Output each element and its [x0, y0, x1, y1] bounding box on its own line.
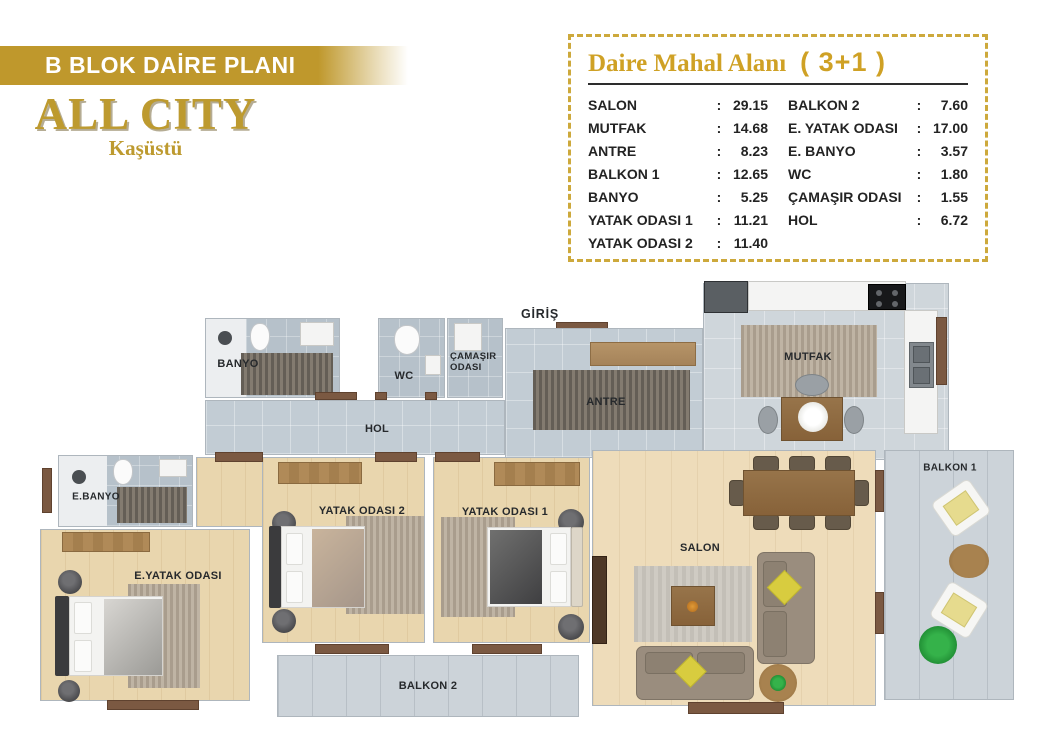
bed-blanket	[104, 599, 162, 675]
sofa-cushion	[763, 611, 787, 657]
table-row: WC:1.80	[788, 163, 968, 186]
bath-rug	[117, 487, 187, 523]
separator: :	[914, 140, 924, 163]
room-name: BALKON 2	[788, 94, 914, 117]
room-label-camasir-odasi: ÇAMAŞIR ODASI	[450, 351, 508, 373]
separator: :	[714, 209, 724, 232]
bed-pillow	[550, 571, 567, 603]
wardrobe	[494, 462, 580, 486]
room-name: MUTFAK	[588, 117, 714, 140]
washing-machine	[454, 323, 482, 351]
room-area: 14.68	[724, 117, 768, 140]
room-area: 1.80	[924, 163, 968, 186]
bathroom-sink	[159, 459, 187, 477]
bed	[281, 526, 365, 608]
bed	[69, 596, 163, 676]
banner-text: B BLOK DAİRE PLANI	[45, 52, 296, 79]
room-name: HOL	[788, 209, 914, 232]
room-name: E. BANYO	[788, 140, 914, 163]
stove	[868, 284, 906, 310]
side-table	[558, 614, 584, 640]
kitchen-sink	[909, 342, 934, 388]
header-banner: B BLOK DAİRE PLANI	[0, 46, 408, 85]
separator: :	[914, 94, 924, 117]
plan-type-badge: ( 3+1 )	[800, 47, 886, 78]
room-label-banyo: BANYO	[217, 358, 258, 370]
wardrobe	[62, 532, 150, 552]
room-label-wc: WC	[395, 370, 414, 382]
separator: :	[714, 186, 724, 209]
dining-chair	[789, 514, 815, 530]
toilet	[113, 459, 133, 485]
door-jamb	[375, 392, 387, 400]
table-row: YATAK ODASI 2:11.40	[588, 232, 768, 255]
door-jamb	[425, 392, 437, 400]
room-name: BALKON 1	[588, 163, 714, 186]
area-table-title: Daire Mahal Alanı	[588, 50, 786, 78]
corridor	[196, 457, 264, 527]
bed-pillow	[286, 533, 303, 565]
bed-headboard	[55, 596, 69, 676]
room-area: 11.40	[724, 232, 768, 255]
table-row: BANYO:5.25	[588, 186, 768, 209]
room-name: WC	[788, 163, 914, 186]
bed-headboard	[571, 527, 583, 607]
chair-cushion	[943, 490, 980, 526]
room-label-mutfak: MUTFAK	[784, 351, 832, 363]
room-label-yatak-odasi-1: YATAK ODASI 1	[462, 506, 548, 518]
room-label-balkon-1: BALKON 1	[923, 463, 977, 474]
bed-pillow	[550, 533, 567, 565]
room-label-balkon-2: BALKON 2	[399, 680, 458, 692]
door-jamb	[875, 592, 884, 634]
title-underline	[588, 83, 968, 85]
door-sill	[375, 452, 417, 462]
table-row: BALKON 2:7.60	[788, 94, 968, 117]
area-table-left-column: SALON:29.15 MUTFAK:14.68 ANTRE:8.23 BALK…	[588, 94, 768, 255]
bed-blanket	[312, 529, 364, 607]
plant	[770, 675, 786, 691]
bathroom-sink	[300, 322, 334, 346]
separator: :	[714, 232, 724, 255]
separator: :	[914, 209, 924, 232]
side-table	[272, 609, 296, 633]
bed-pillow	[74, 640, 92, 672]
wall-accent	[42, 468, 52, 513]
room-area: 11.21	[724, 209, 768, 232]
bed-blanket	[490, 530, 542, 604]
toilet	[250, 323, 270, 351]
wall-accent	[936, 317, 947, 385]
separator: :	[914, 163, 924, 186]
dining-chair	[825, 514, 851, 530]
dining-table	[743, 470, 855, 516]
area-table-title-row: Daire Mahal Alanı ( 3+1 )	[588, 47, 968, 78]
door-sill	[215, 452, 263, 462]
table-row: E. BANYO:3.57	[788, 140, 968, 163]
door-sill	[315, 392, 357, 400]
table-row: HOL:6.72	[788, 209, 968, 232]
balcony-door-sill	[315, 644, 389, 654]
bed	[487, 527, 571, 607]
plant	[919, 626, 957, 664]
separator: :	[714, 117, 724, 140]
room-area: 12.65	[724, 163, 768, 186]
wc-sink	[425, 355, 441, 375]
shower-fixture	[218, 331, 232, 345]
area-table-right-column: BALKON 2:7.60 E. YATAK ODASI:17.00 E. BA…	[788, 94, 968, 255]
table-row: ANTRE:8.23	[588, 140, 768, 163]
window-sill	[107, 700, 199, 710]
project-title: ALL CITY	[28, 88, 263, 140]
room-label-salon: SALON	[680, 542, 720, 554]
shower-fixture	[72, 470, 86, 484]
door-jamb	[875, 470, 884, 512]
room-balkon-1	[884, 450, 1014, 700]
side-table	[58, 680, 80, 702]
separator: :	[914, 186, 924, 209]
table-row: E. YATAK ODASI:17.00	[788, 117, 968, 140]
room-area: 17.00	[924, 117, 968, 140]
door-sill	[435, 452, 480, 462]
kitchen-chair	[758, 406, 778, 434]
table-row: YATAK ODASI 1:11.21	[588, 209, 768, 232]
bed-headboard	[269, 526, 281, 608]
sink-basin	[913, 367, 930, 384]
balcony-table	[949, 544, 989, 578]
sofa	[636, 646, 754, 700]
room-name: E. YATAK ODASI	[788, 117, 914, 140]
separator: :	[714, 140, 724, 163]
room-area: 1.55	[924, 186, 968, 209]
room-name: BANYO	[588, 186, 714, 209]
side-table-round	[759, 664, 797, 702]
area-table: Daire Mahal Alanı ( 3+1 ) SALON:29.15 MU…	[568, 34, 988, 262]
room-hol	[205, 400, 505, 455]
entry-cabinet	[590, 342, 696, 366]
room-name: ÇAMAŞIR ODASI	[788, 186, 914, 209]
dining-chair	[753, 514, 779, 530]
tv-unit	[592, 556, 607, 644]
room-label-giris: GİRİŞ	[521, 307, 559, 321]
area-table-columns: SALON:29.15 MUTFAK:14.68 ANTRE:8.23 BALK…	[588, 94, 968, 255]
bed-pillow	[74, 602, 92, 634]
table-row: BALKON 1:12.65	[588, 163, 768, 186]
room-name: SALON	[588, 94, 714, 117]
room-area: 8.23	[724, 140, 768, 163]
dining-chair	[853, 480, 869, 506]
room-label-yatak-odasi-2: YATAK ODASI 2	[319, 505, 405, 517]
project-subtitle: Kaşüstü	[28, 136, 263, 161]
table-row: MUTFAK:14.68	[588, 117, 768, 140]
room-label-antre: ANTRE	[586, 396, 625, 408]
fridge	[704, 281, 748, 313]
separator: :	[914, 117, 924, 140]
table-decor	[687, 601, 698, 612]
room-label-e-yatak-odasi: E.YATAK ODASI	[134, 570, 221, 582]
chair-cushion	[941, 592, 977, 627]
sofa	[757, 552, 815, 664]
separator: :	[714, 163, 724, 186]
balcony-door-sill	[472, 644, 542, 654]
room-area: 29.15	[724, 94, 768, 117]
floor-plan-page: B BLOK DAİRE PLANI ALL CITY Kaşüstü Dair…	[0, 0, 1052, 748]
table-row: SALON:29.15	[588, 94, 768, 117]
room-area: 7.60	[924, 94, 968, 117]
bed-pillow	[286, 571, 303, 603]
room-wc	[378, 318, 445, 398]
room-name: ANTRE	[588, 140, 714, 163]
room-area: 3.57	[924, 140, 968, 163]
room-name: YATAK ODASI 1	[588, 209, 714, 232]
wardrobe	[278, 462, 362, 484]
room-area: 6.72	[924, 209, 968, 232]
room-label-e-banyo: E.BANYO	[72, 492, 120, 503]
burners	[876, 290, 882, 296]
room-label-hol: HOL	[365, 423, 389, 435]
balcony-door-sill	[688, 702, 784, 714]
side-table	[58, 570, 82, 594]
room-area: 5.25	[724, 186, 768, 209]
toilet	[394, 325, 420, 355]
table-row: ÇAMAŞIR ODASI:1.55	[788, 186, 968, 209]
kitchen-chair	[795, 374, 829, 396]
table-plant	[798, 402, 828, 432]
sink-basin	[913, 346, 930, 363]
room-name: YATAK ODASI 2	[588, 232, 714, 255]
kitchen-chair	[844, 406, 864, 434]
separator: :	[714, 94, 724, 117]
